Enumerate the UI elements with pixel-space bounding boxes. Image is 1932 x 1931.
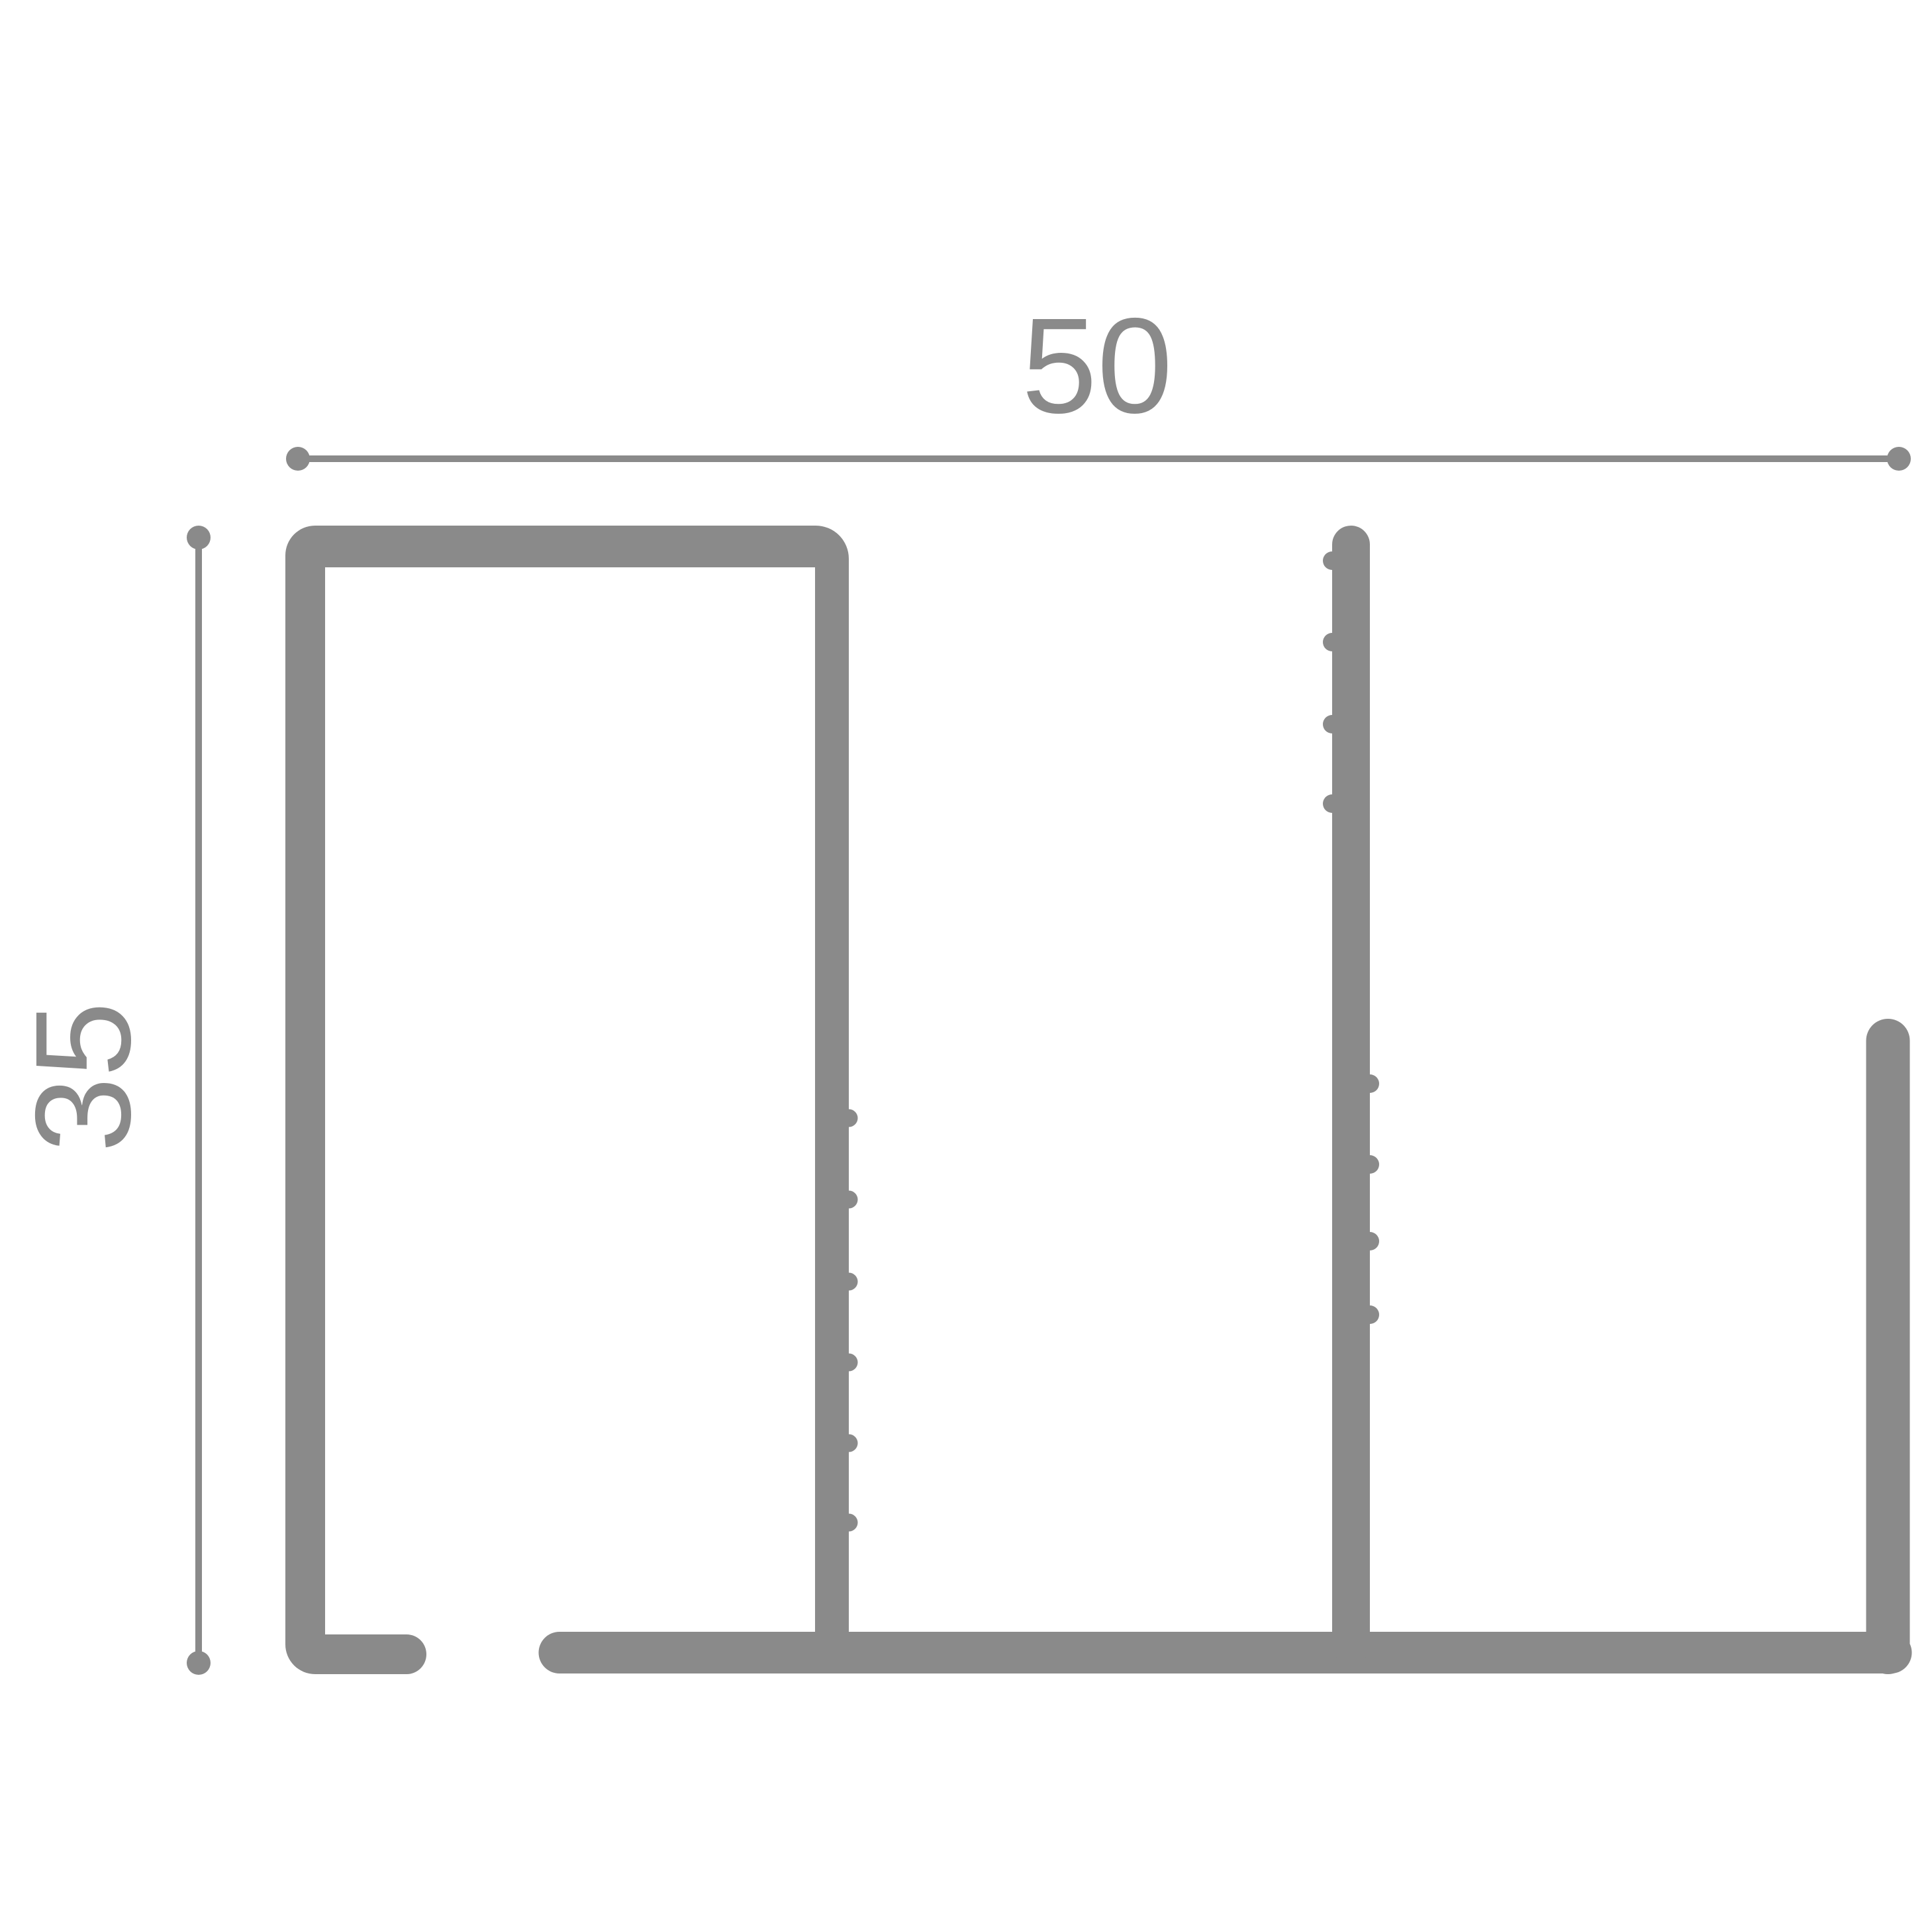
- svg-text:50: 50: [1022, 290, 1173, 442]
- svg-text:35: 35: [7, 1002, 159, 1153]
